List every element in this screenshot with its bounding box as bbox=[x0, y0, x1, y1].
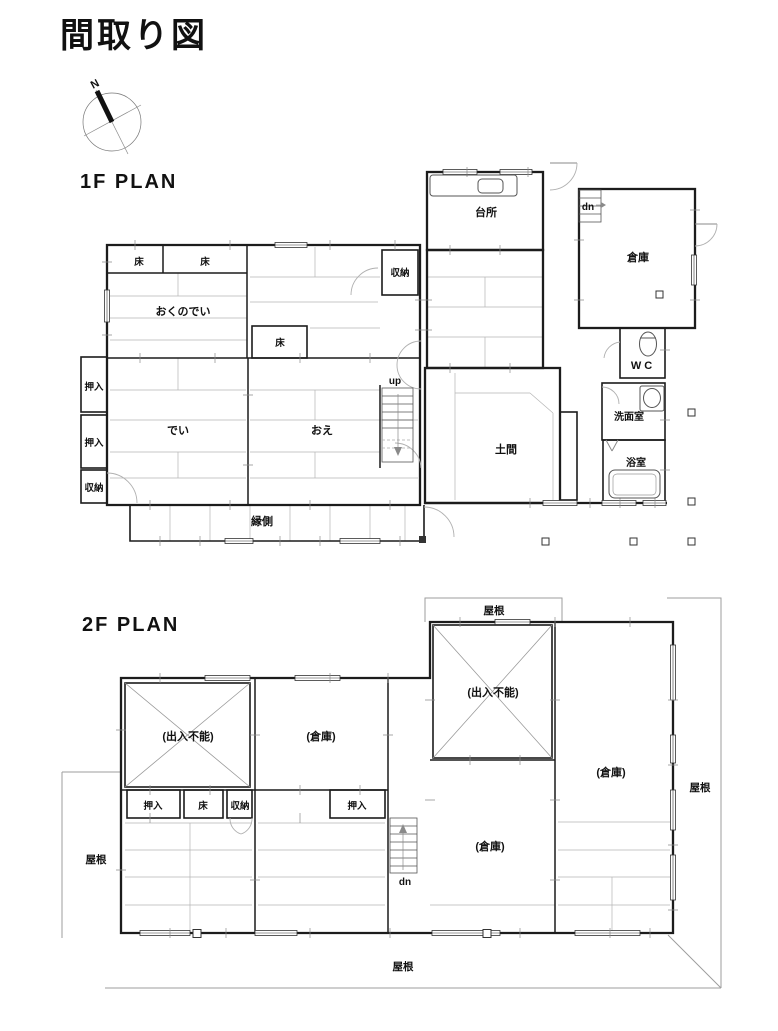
stairs-up-label: up bbox=[389, 376, 401, 387]
compass-north-label: N bbox=[89, 77, 102, 91]
room-label-shunou-center: 収納 bbox=[390, 267, 409, 279]
floor1-plan: 1F PLAN bbox=[80, 163, 717, 546]
floor2-walls bbox=[121, 622, 673, 933]
room-label-yokushitsu: 浴室 bbox=[626, 456, 646, 469]
room-label-toko-2f: 床 bbox=[198, 800, 208, 812]
room-label-dei: でい bbox=[167, 424, 189, 437]
floor1-door-arcs bbox=[107, 163, 717, 537]
floor1-window-symbols bbox=[105, 170, 697, 544]
room-label-shunou-left: 収納 bbox=[84, 482, 103, 494]
floor1-tatami-lines bbox=[110, 247, 553, 541]
room-label-oshiire-b: 押入 bbox=[84, 437, 104, 449]
room-label-senmenshitsu: 洗面室 bbox=[614, 410, 644, 423]
floor2-grid-ticks bbox=[116, 617, 678, 938]
room-label-inaccessible-right: (出入不能) bbox=[467, 685, 519, 699]
room-label-doma: 土間 bbox=[495, 442, 517, 456]
stairs-up-1f bbox=[382, 388, 413, 462]
room-label-oshiire-a: 押入 bbox=[84, 381, 104, 393]
floorplan-page: 間取り図 N 1F PLAN bbox=[0, 0, 778, 1031]
floor2-window-symbols bbox=[140, 620, 676, 938]
room-label-souko-1f: 倉庫 bbox=[626, 250, 649, 264]
toilet-icon bbox=[640, 332, 657, 356]
room-label-okunodei: おくのでい bbox=[156, 305, 211, 318]
room-label-oshiire-2f-b: 押入 bbox=[347, 800, 367, 812]
sink-icon bbox=[640, 386, 664, 411]
kitchen-counter bbox=[430, 175, 517, 196]
room-label-souko-right: (倉庫) bbox=[596, 765, 626, 779]
roof-label-right: 屋根 bbox=[690, 781, 711, 794]
floor2-plan: 2F PLAN bbox=[62, 598, 721, 988]
floor2-tatami-lines bbox=[125, 822, 670, 933]
roof-label-left: 屋根 bbox=[86, 853, 107, 866]
floor2-door-arcs bbox=[230, 818, 252, 834]
room-label-engawa: 縁側 bbox=[251, 514, 273, 528]
stairs-down-2f bbox=[390, 818, 417, 873]
room-label-souko-center: (倉庫) bbox=[475, 839, 505, 853]
room-label-shunou-2f: 収納 bbox=[230, 800, 249, 812]
room-label-toko-a: 床 bbox=[134, 256, 144, 268]
compass-icon: N bbox=[83, 77, 141, 154]
room-label-souko-top: (倉庫) bbox=[306, 729, 336, 743]
floorplan-drawing: 間取り図 N 1F PLAN bbox=[0, 0, 778, 1031]
bathtub-icon bbox=[609, 470, 660, 498]
page-title: 間取り図 bbox=[60, 17, 208, 55]
room-label-toko-b: 床 bbox=[200, 256, 210, 268]
room-label-inaccessible-left: (出入不能) bbox=[162, 729, 214, 743]
floor2-heading: 2F PLAN bbox=[82, 614, 179, 636]
floor1-grid-ticks bbox=[102, 167, 700, 546]
roof-outline bbox=[62, 598, 721, 988]
roof-label-top: 屋根 bbox=[484, 604, 505, 617]
room-label-wc: WC bbox=[631, 360, 655, 372]
floor1-walls bbox=[81, 172, 695, 541]
roof-label-bottom: 屋根 bbox=[393, 960, 414, 973]
stairs-dn-label-2f: dn bbox=[399, 877, 411, 888]
room-label-toko-c: 床 bbox=[275, 337, 285, 349]
room-label-oshiire-2f-a: 押入 bbox=[143, 800, 163, 812]
room-label-daidokoro: 台所 bbox=[475, 205, 497, 219]
room-label-oe: おえ bbox=[311, 424, 333, 437]
floor1-heading: 1F PLAN bbox=[80, 171, 177, 193]
stairs-dn-label-1f: dn bbox=[582, 202, 594, 213]
